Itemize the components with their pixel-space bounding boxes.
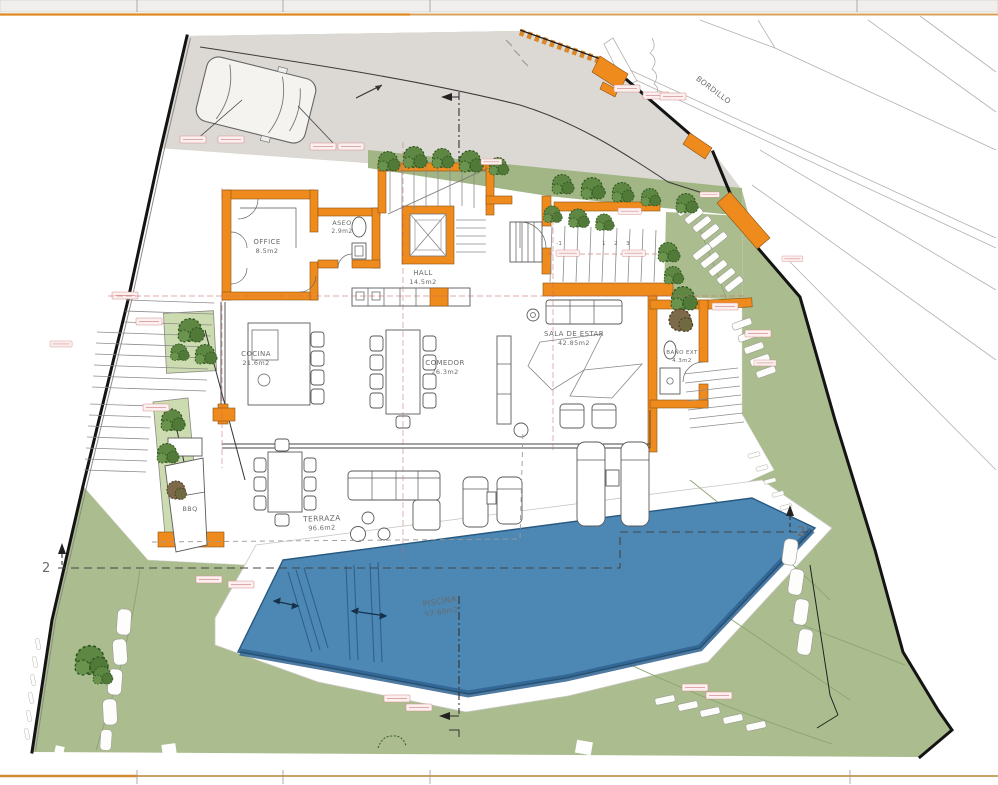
- sun-lounger: [621, 442, 649, 526]
- section-marker-2: 2: [42, 561, 51, 576]
- step-number: -1: [556, 241, 562, 247]
- room-label-terraza: TERRAZA: [302, 513, 341, 523]
- step-number: 1: [602, 241, 606, 247]
- room-label-sala: SALA DE ESTAR: [544, 330, 604, 338]
- hall-closet: [352, 288, 470, 306]
- floor-plan-svg: -1 1 2 3: [0, 0, 998, 785]
- room-area-sala: 42.85m2: [558, 339, 590, 347]
- sun-lounger: [463, 477, 488, 527]
- elevator: [402, 206, 454, 264]
- room-label-comedor: COMEDOR: [425, 359, 464, 367]
- room-area-bano: 4.3m2: [672, 358, 692, 364]
- room-area-comedor: 26.3m2: [431, 368, 458, 376]
- step-number: 2: [614, 241, 618, 247]
- room-label-cocina: COCINA: [241, 350, 271, 358]
- section-marker-2prime: 2': [797, 525, 810, 540]
- room-area-office: 8.5m2: [256, 247, 279, 255]
- drawing-sheet: -1 1 2 3: [0, 0, 998, 785]
- room-label-hall: HALL: [413, 269, 432, 277]
- room-area-hall: 14.5m2: [409, 278, 436, 286]
- room-label-aseo: ASEO: [332, 219, 351, 227]
- room-label-bbq: BBQ: [182, 505, 197, 513]
- room-area-terraza: 96.6m2: [308, 524, 336, 533]
- entry-closet: [510, 222, 542, 262]
- room-area-cocina: 21.6m2: [242, 359, 269, 367]
- room-label-bano: BAÑO EXT: [666, 349, 698, 356]
- sun-lounger: [577, 442, 605, 526]
- outdoor-sofa: [348, 471, 440, 500]
- step-number: 3: [626, 241, 630, 247]
- sun-lounger: [497, 477, 522, 524]
- room-area-aseo: 2.9m2: [331, 228, 352, 235]
- curb-label-bordillo: BORDILLO: [694, 74, 732, 106]
- room-label-office: OFFICE: [253, 238, 280, 246]
